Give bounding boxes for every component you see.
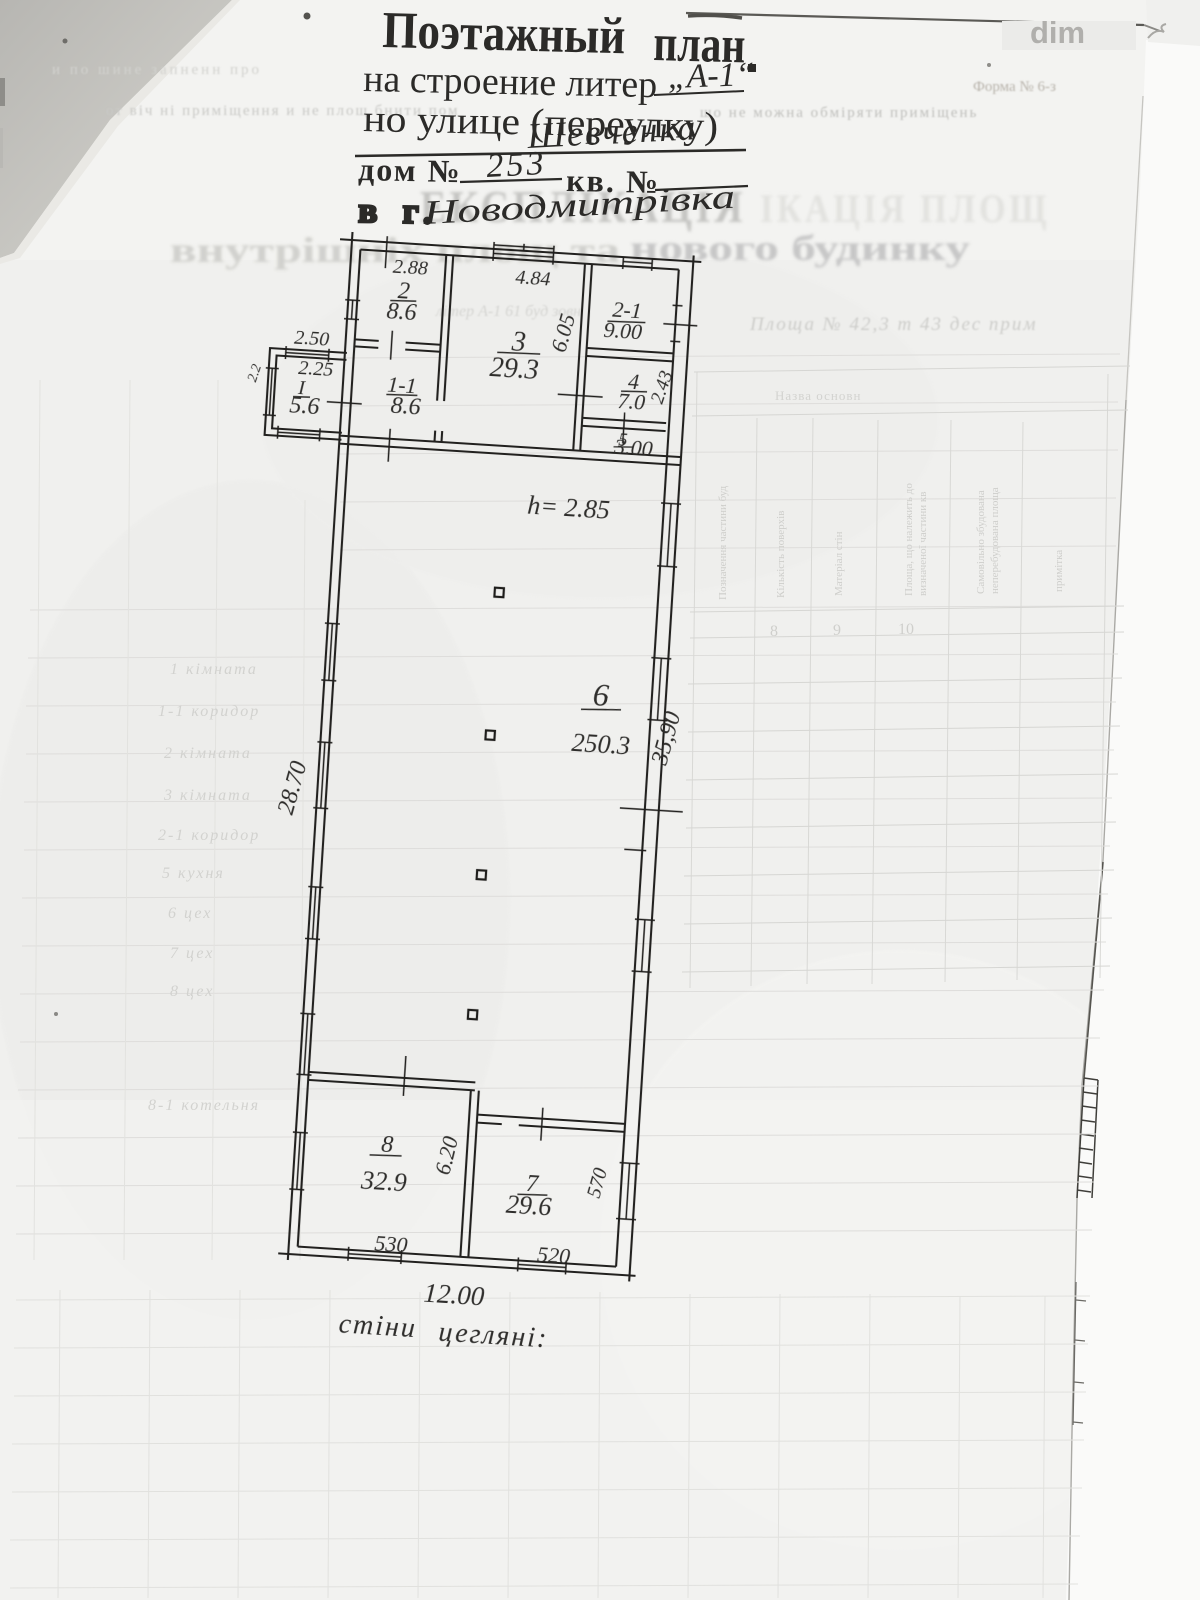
svg-text:12.00: 12.00 <box>423 1278 486 1312</box>
svg-text:Позначення частини буд: Позначення частини буд <box>717 485 729 600</box>
svg-text:7.0: 7.0 <box>617 388 646 415</box>
svg-text:530: 530 <box>374 1230 409 1257</box>
svg-text:8-1 котельня: 8-1 котельня <box>148 1097 260 1114</box>
svg-text:dim: dim <box>1030 15 1085 50</box>
svg-text:4.84: 4.84 <box>515 266 551 290</box>
svg-text:2.50: 2.50 <box>294 327 330 351</box>
svg-text:нового будинку: нового будинку <box>630 228 970 268</box>
svg-text:1 кімната: 1 кімната <box>170 661 258 678</box>
svg-text:ІКАЦІЯ ПЛОЩ: ІКАЦІЯ ПЛОЩ <box>760 186 1050 231</box>
svg-text:Кількість поверхів: Кількість поверхів <box>775 511 787 598</box>
svg-text:що не можна обміряти приміщень: що не можна обміряти приміщень <box>700 105 978 121</box>
svg-text:250.3: 250.3 <box>571 728 631 761</box>
svg-text:9: 9 <box>833 622 841 639</box>
svg-text:Самовільно збудована: Самовільно збудована <box>975 490 987 594</box>
svg-text:6: 6 <box>592 676 610 713</box>
svg-text:5.6: 5.6 <box>289 392 321 420</box>
svg-text:6 цех: 6 цех <box>168 905 212 922</box>
svg-text:и по шине запненн про: и по шине запненн про <box>52 62 262 78</box>
svg-text:8.6: 8.6 <box>386 298 418 326</box>
svg-text:Назва основн: Назва основн <box>775 388 861 403</box>
svg-text:Форма № 6-з: Форма № 6-з <box>973 79 1056 95</box>
svg-text:примітка: примітка <box>1053 550 1065 592</box>
svg-text:визначеної частини кв: визначеної частини кв <box>917 492 929 596</box>
svg-text:520: 520 <box>536 1242 571 1269</box>
svg-text:3.00: 3.00 <box>613 434 654 461</box>
svg-text:8: 8 <box>770 623 778 640</box>
svg-text:1-1 коридор: 1-1 коридор <box>158 703 260 720</box>
svg-text:29.6: 29.6 <box>505 1190 552 1222</box>
svg-text:Матеріал стін: Матеріал стін <box>833 531 845 596</box>
svg-text:9.00: 9.00 <box>603 317 643 344</box>
svg-text:2 кімната: 2 кімната <box>164 745 252 762</box>
svg-text:8 цех: 8 цех <box>170 983 214 1000</box>
svg-text:29.3: 29.3 <box>489 352 540 386</box>
svg-text:3 кімната: 3 кімната <box>163 787 252 804</box>
svg-text:Площа, що належить до: Площа, що належить до <box>903 483 915 596</box>
svg-text:2.88: 2.88 <box>392 256 428 280</box>
svg-text:„А-1“: „А-1“ <box>667 56 755 96</box>
svg-text:дом №: дом № <box>358 151 462 189</box>
svg-text:неперебудована площа: неперебудована площа <box>989 487 1001 594</box>
svg-text:стіни: стіни <box>338 1308 418 1344</box>
svg-text:Поэтажный: Поэтажный <box>382 2 626 65</box>
svg-text:2-1 коридор: 2-1 коридор <box>158 827 260 844</box>
svg-text:Площа № 42,3 т 43: Площа № 42,3 т 43 дес прим <box>749 314 1038 335</box>
svg-text:7 цех: 7 цех <box>170 945 214 962</box>
svg-text:32.9: 32.9 <box>359 1165 407 1197</box>
svg-text:10: 10 <box>898 621 914 638</box>
svg-text:h= 2.85: h= 2.85 <box>527 491 611 525</box>
svg-text:8: 8 <box>380 1132 394 1159</box>
svg-text:8.6: 8.6 <box>390 393 422 421</box>
svg-text:5 кухня: 5 кухня <box>162 865 225 882</box>
